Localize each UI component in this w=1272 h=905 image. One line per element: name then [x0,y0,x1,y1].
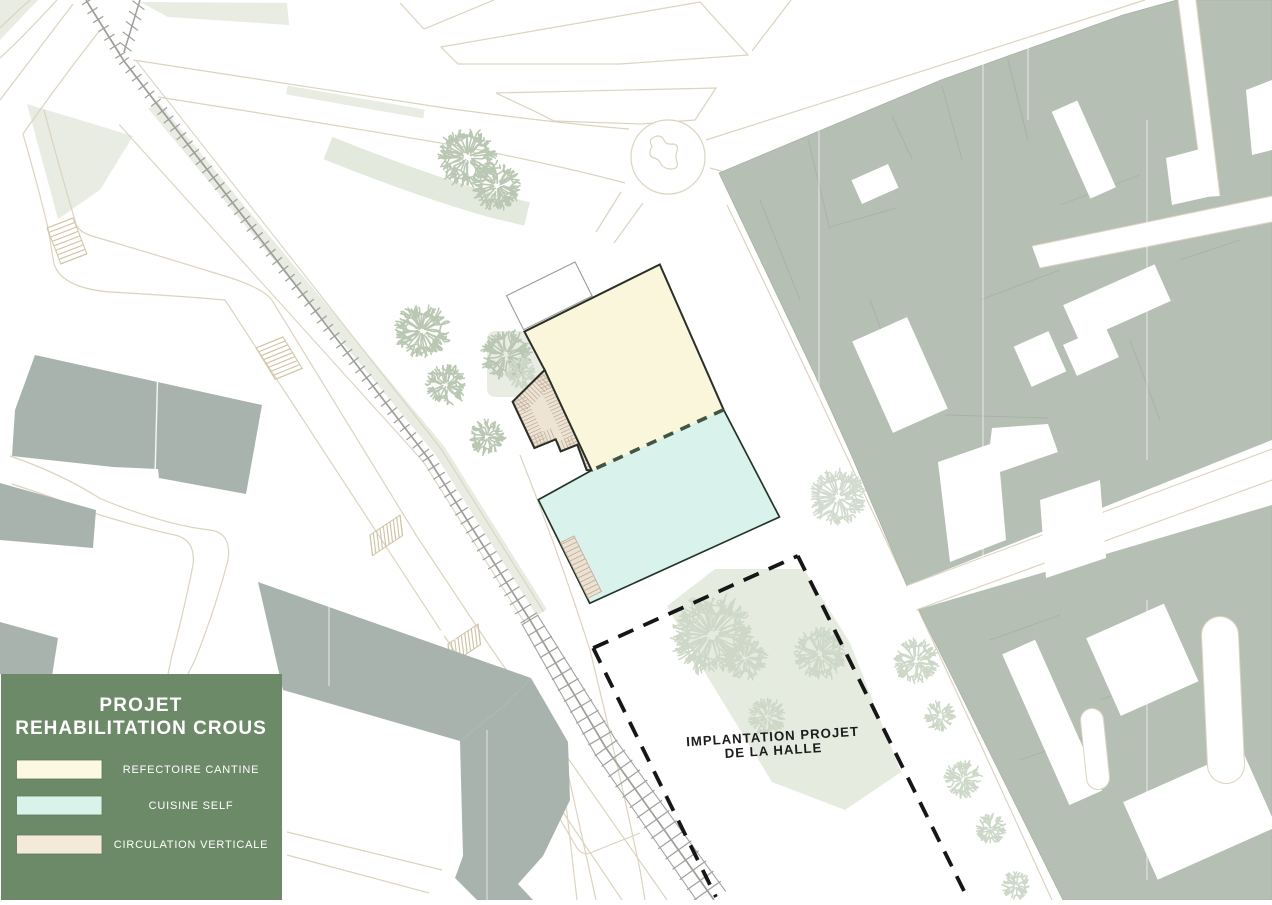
svg-text:CUISINE SELF: CUISINE SELF [149,800,234,812]
svg-text:PROJET: PROJET [99,695,182,716]
svg-text:CIRCULATION VERTICALE: CIRCULATION VERTICALE [114,839,269,851]
svg-text:REFECTOIRE CANTINE: REFECTOIRE CANTINE [123,764,259,776]
svg-text:REHABILITATION CROUS: REHABILITATION CROUS [15,718,267,739]
